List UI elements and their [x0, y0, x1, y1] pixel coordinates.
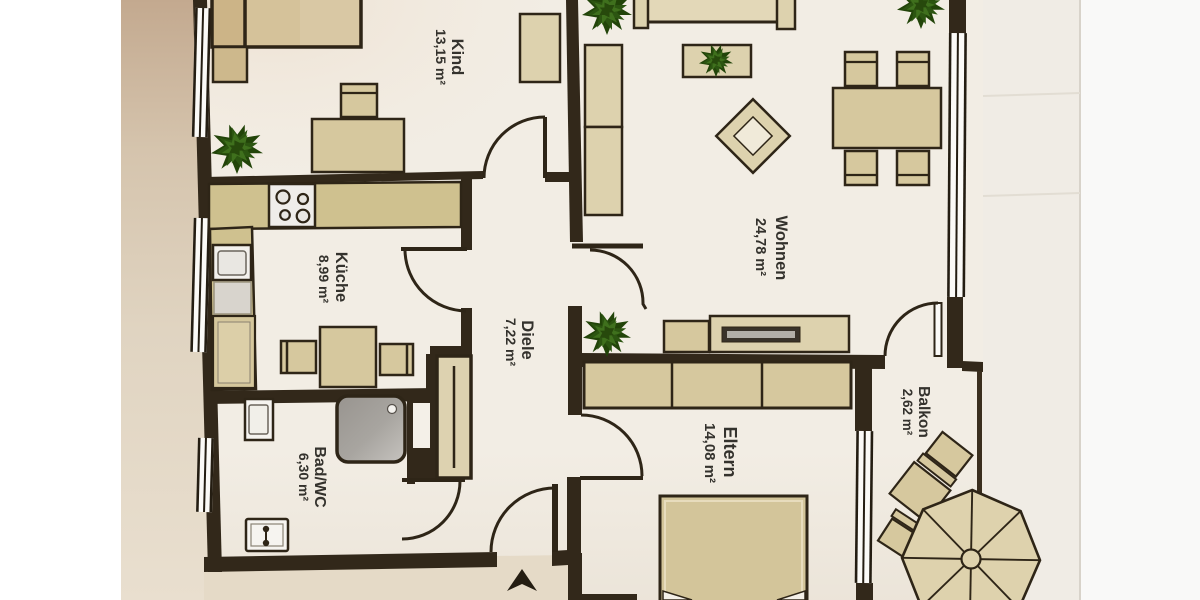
svg-text:14,08 m²: 14,08 m² — [701, 423, 718, 483]
svg-text:6,30 m²: 6,30 m² — [296, 453, 312, 502]
svg-text:Bad/WC: Bad/WC — [311, 446, 328, 508]
svg-text:8,99 m²: 8,99 m² — [316, 255, 332, 304]
svg-text:2,62 m²: 2,62 m² — [900, 389, 915, 436]
svg-text:7,22 m²: 7,22 m² — [503, 318, 519, 367]
svg-text:Eltern: Eltern — [720, 426, 740, 477]
svg-text:Balkon: Balkon — [915, 386, 932, 438]
svg-text:Wohnen: Wohnen — [772, 216, 790, 281]
svg-text:Diele: Diele — [518, 320, 536, 359]
svg-text:24,78 m²: 24,78 m² — [752, 218, 768, 276]
svg-text:Kind: Kind — [448, 39, 466, 76]
svg-text:13,15 m²: 13,15 m² — [433, 29, 449, 85]
svg-text:Küche: Küche — [332, 252, 350, 302]
